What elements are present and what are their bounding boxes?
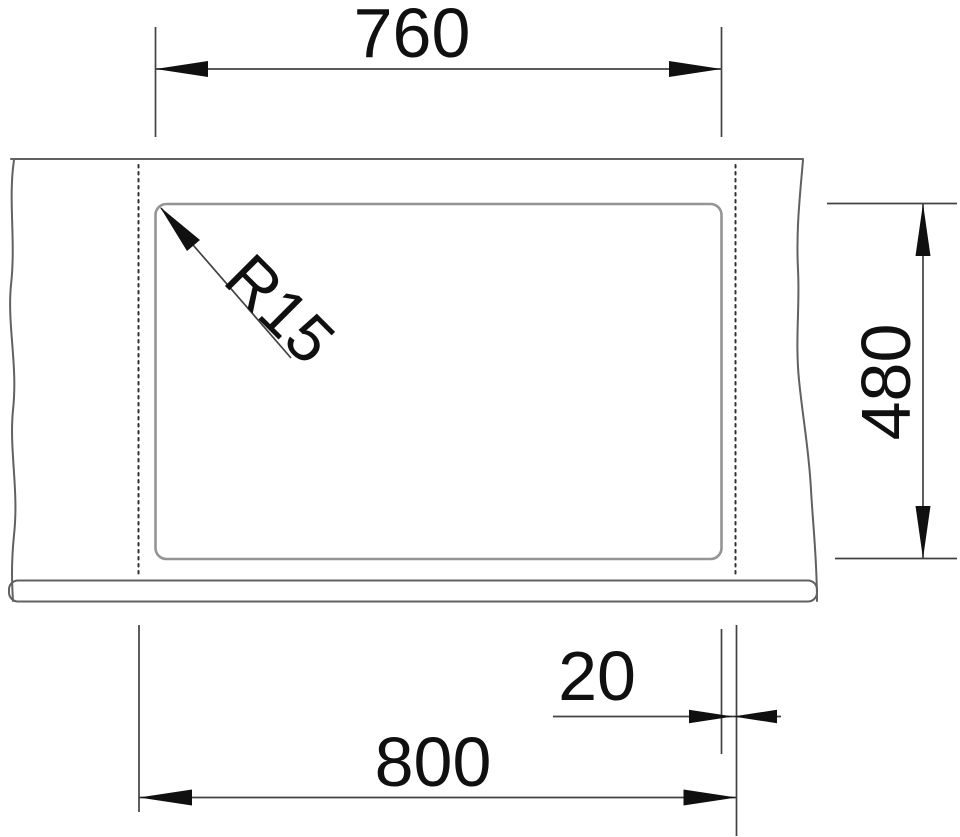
corner-radius-label: R15 xyxy=(211,240,349,378)
rim-offset-label: 20 xyxy=(558,637,636,715)
overall-width-label: 800 xyxy=(375,723,492,801)
arrowhead-760-right xyxy=(669,61,722,77)
sink-cutout-dimension-drawing: 760 480 R15 20 800 xyxy=(0,0,960,837)
arrowhead-radius xyxy=(160,207,200,251)
arrowhead-800-left xyxy=(139,790,192,806)
arrowhead-800-right xyxy=(684,790,737,806)
technical-drawing-canvas: 760 480 R15 20 800 xyxy=(0,0,960,837)
countertop-break-line-left xyxy=(10,160,15,601)
dimension-labels: 760 480 R15 20 800 xyxy=(211,0,925,801)
front-edge-strip xyxy=(9,581,817,602)
dimension-lines xyxy=(139,27,957,836)
cutout-width-label: 760 xyxy=(354,0,471,72)
arrowhead-20-left xyxy=(689,710,733,723)
hidden-edge-lines xyxy=(139,165,736,576)
dimension-arrowheads xyxy=(139,61,931,806)
sink-cutout-outline xyxy=(156,204,722,559)
arrowhead-480-bottom xyxy=(916,506,931,559)
countertop-break-line-right xyxy=(797,160,817,601)
arrowhead-480-top xyxy=(916,204,931,257)
object-lines xyxy=(9,159,817,602)
arrowhead-760-left xyxy=(156,61,209,77)
cutout-depth-label: 480 xyxy=(847,324,925,441)
arrowhead-20-right xyxy=(733,710,777,723)
